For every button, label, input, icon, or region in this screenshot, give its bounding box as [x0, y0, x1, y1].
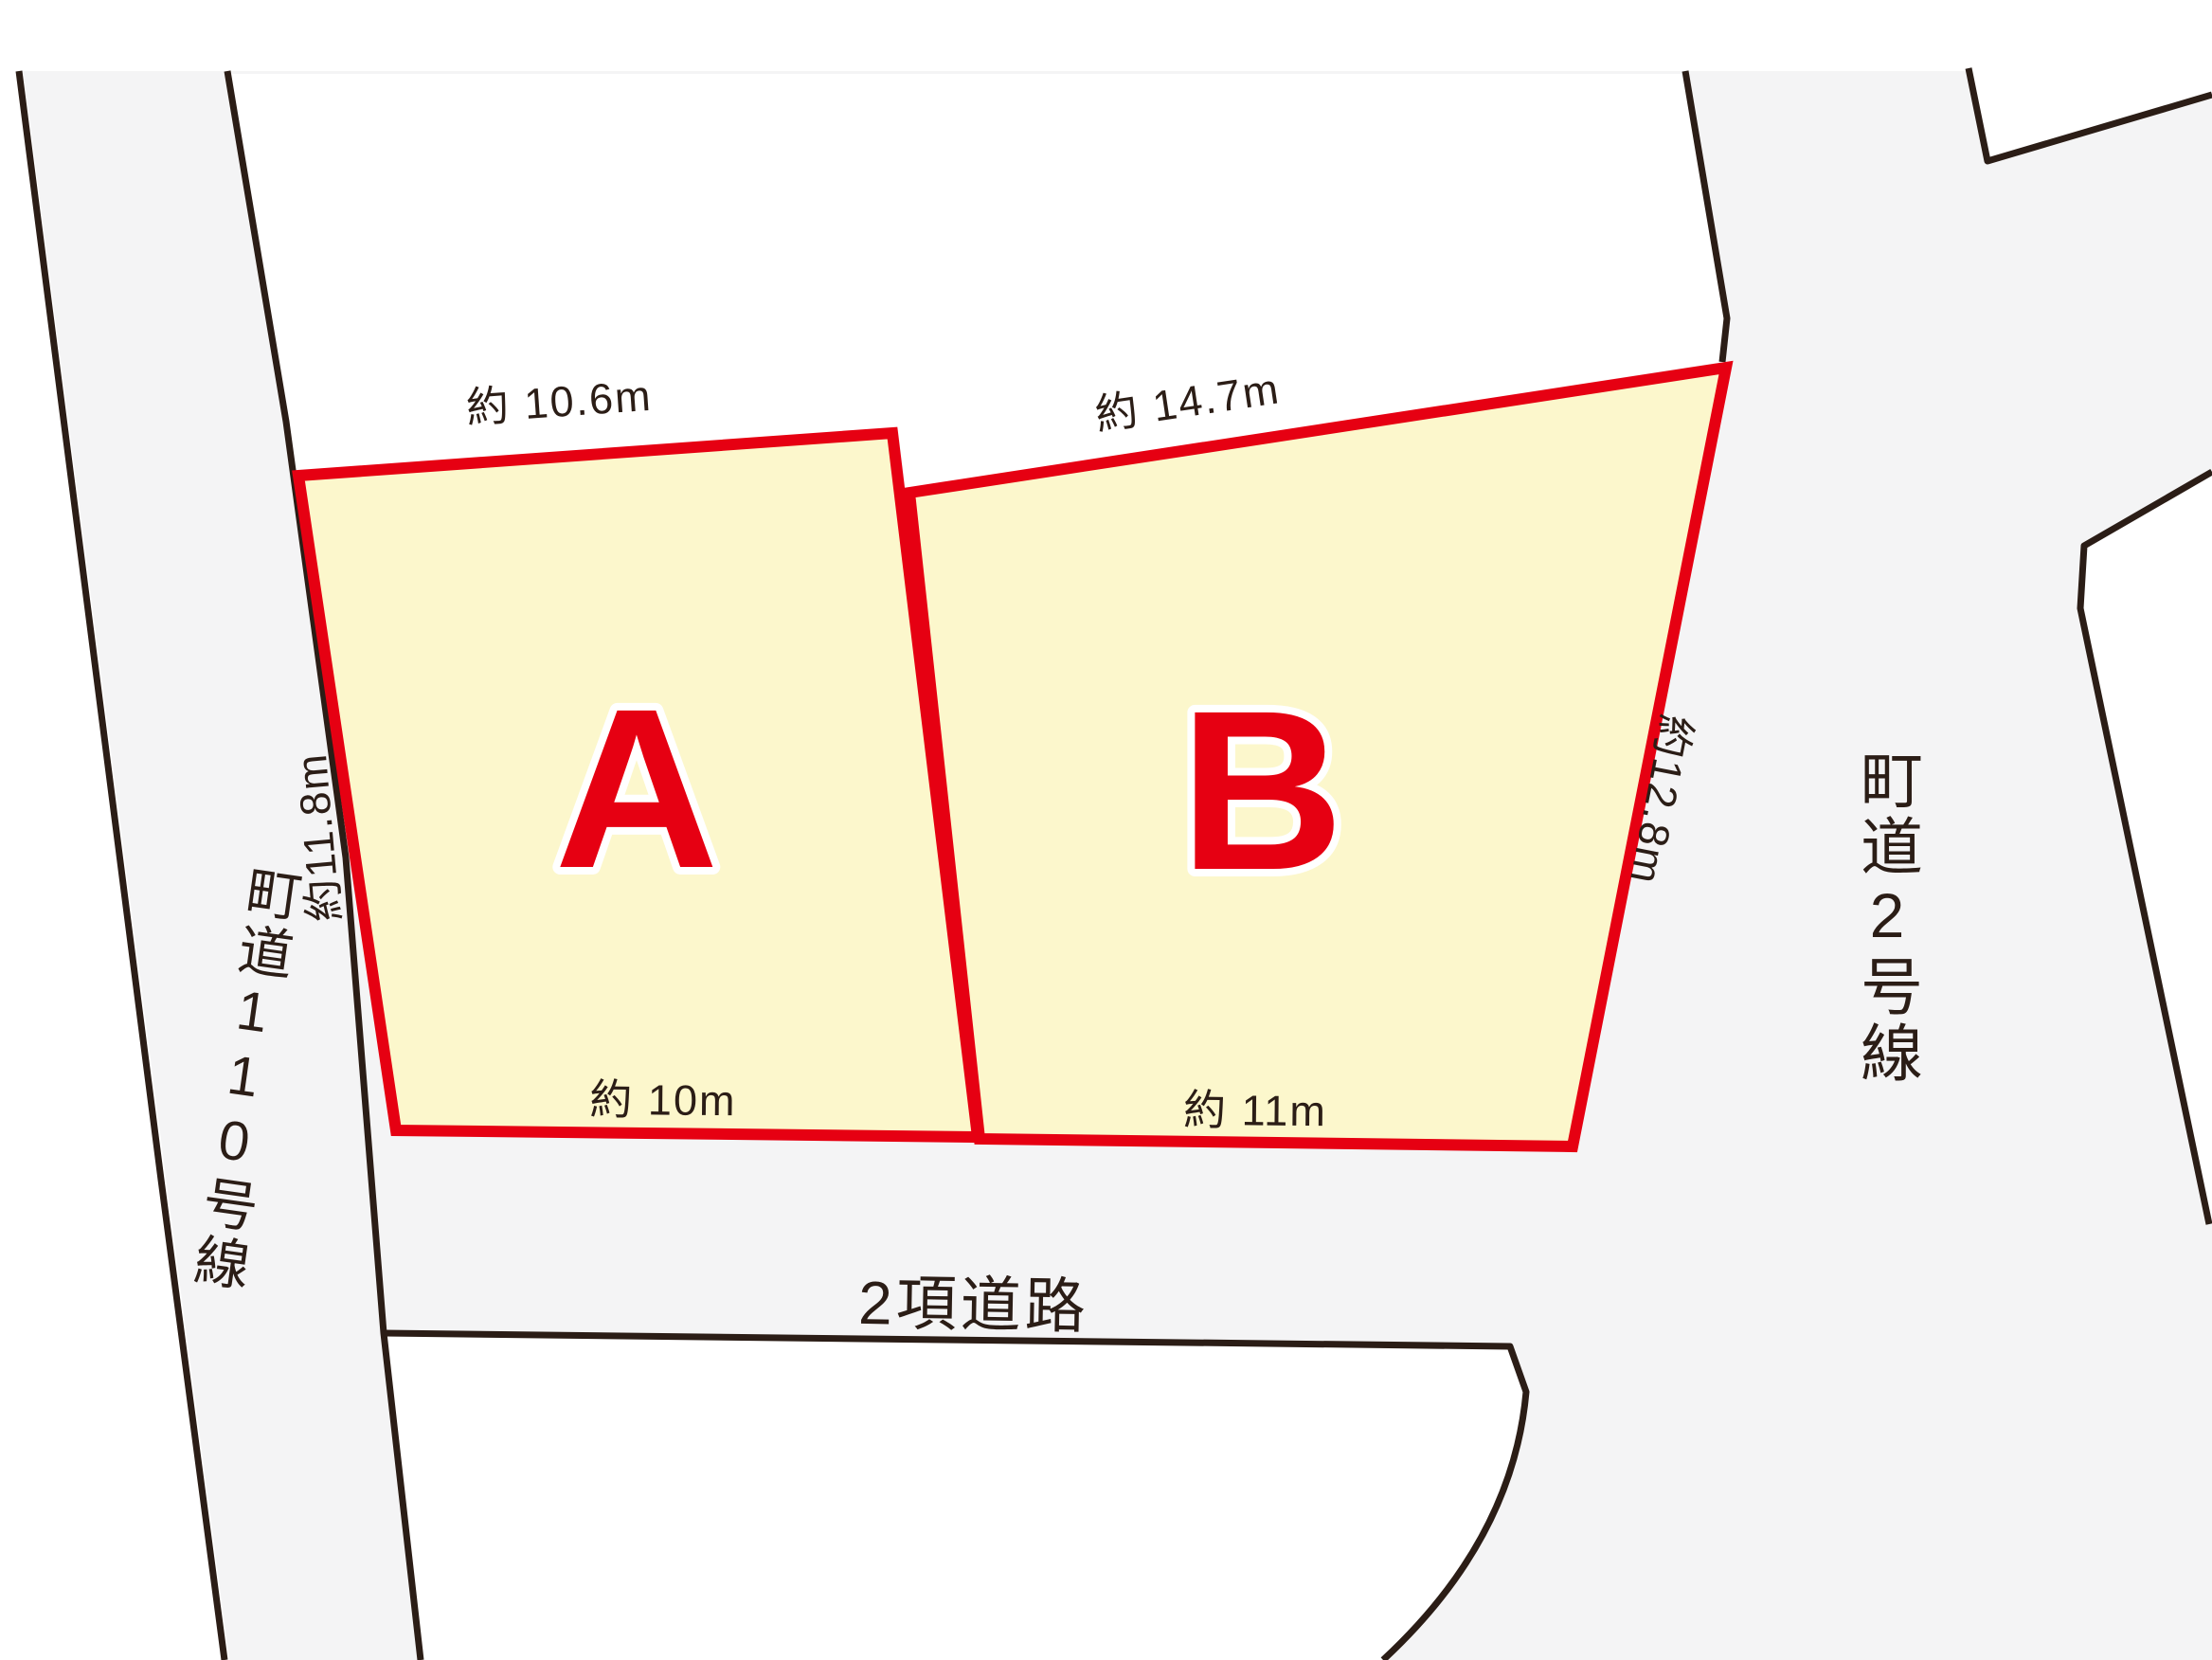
bottom-road-name: 2項道路 [857, 1254, 1089, 1345]
lot-a-bottom-dimension: 約 10m [589, 1065, 737, 1128]
lot-b-letter: B [1179, 663, 1343, 917]
lot-b-bottom-dimension: 約 11m [1183, 1075, 1327, 1138]
south-center-parcel [387, 1336, 1526, 1660]
top-margin [0, 0, 2212, 71]
lot-a-letter: A [554, 661, 718, 915]
lot-diagram: A B 約 10.6m 約 14.7m 約11.8m 約12.8m 約 10m … [0, 0, 2212, 1660]
right-road-name: 町道2号線 [1842, 748, 1933, 1087]
lot-a-top-dimension: 約 10.6m [464, 361, 655, 436]
